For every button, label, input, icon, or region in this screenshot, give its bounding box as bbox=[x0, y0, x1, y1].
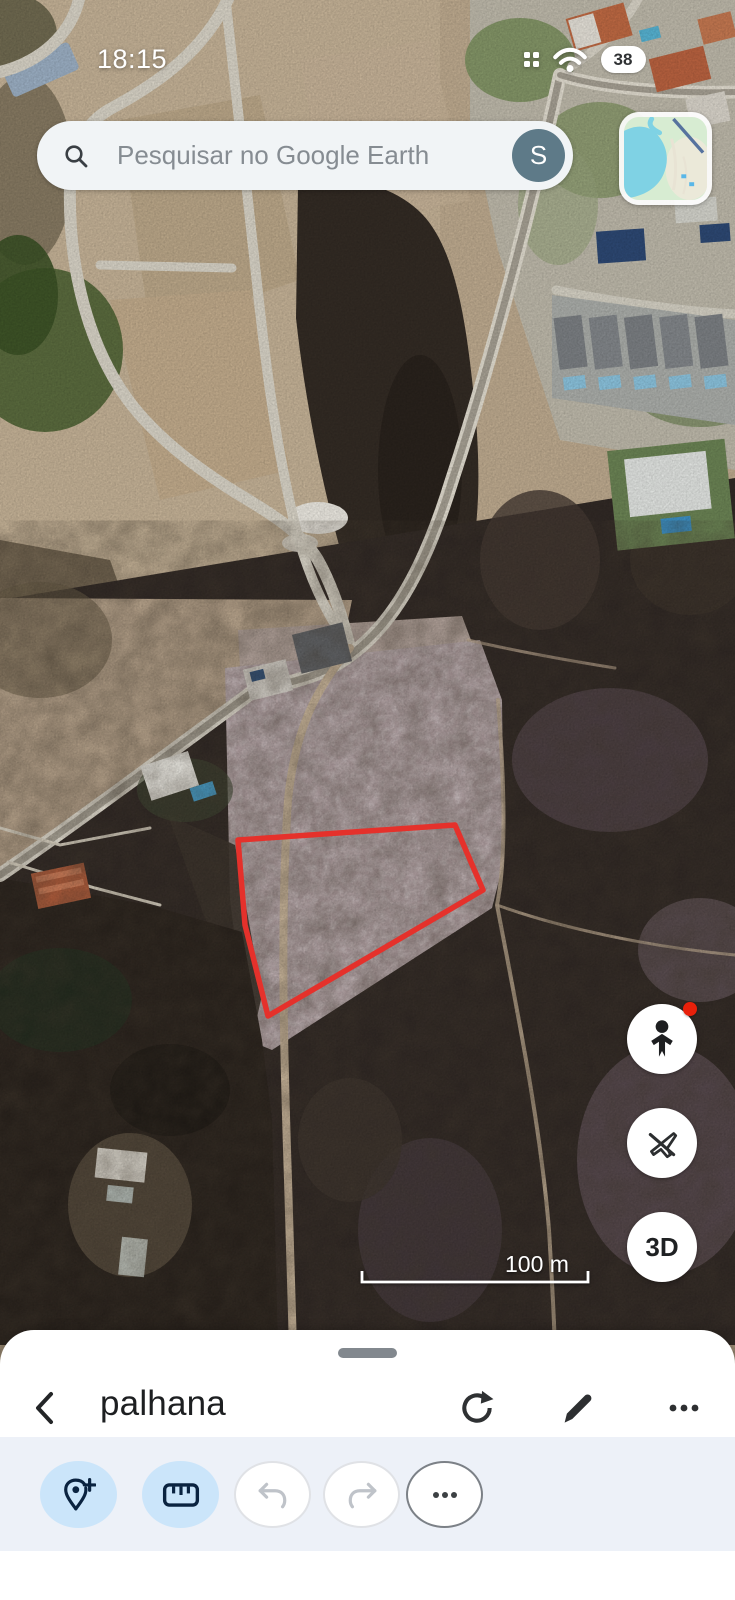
drag-handle[interactable] bbox=[338, 1348, 397, 1358]
flight-off-icon bbox=[643, 1124, 681, 1162]
bottom-sheet: palhana bbox=[0, 1330, 735, 1600]
mini-map bbox=[624, 117, 707, 200]
wifi-icon bbox=[553, 47, 587, 73]
back-chevron-icon bbox=[29, 1388, 59, 1428]
add-placemark-button[interactable] bbox=[40, 1461, 117, 1528]
ellipsis-icon bbox=[430, 1480, 460, 1510]
avatar-initial: S bbox=[530, 140, 547, 171]
measure-button[interactable] bbox=[142, 1461, 219, 1528]
grid-icon bbox=[524, 52, 539, 67]
google-earth-app: 18:15 38 S bbox=[0, 0, 735, 1600]
3d-toggle-button[interactable]: 3D bbox=[627, 1212, 697, 1282]
overflow-menu-icon bbox=[666, 1390, 702, 1426]
redo-icon bbox=[346, 1481, 378, 1509]
editing-toolbar bbox=[0, 1437, 735, 1551]
status-icons: 38 bbox=[524, 46, 646, 73]
account-avatar[interactable]: S bbox=[512, 129, 565, 182]
pencil-icon bbox=[559, 1390, 595, 1426]
notification-dot bbox=[683, 1002, 697, 1016]
pin-plus-icon bbox=[62, 1478, 96, 1512]
battery-icon: 38 bbox=[601, 46, 646, 73]
ruler-icon bbox=[162, 1480, 200, 1510]
flight-mode-button[interactable] bbox=[627, 1108, 697, 1178]
search-input[interactable] bbox=[115, 139, 512, 172]
scale-bar bbox=[356, 1266, 596, 1288]
satellite-grain bbox=[0, 0, 735, 1345]
back-button[interactable] bbox=[22, 1386, 66, 1430]
sheet-header: palhana bbox=[0, 1376, 735, 1440]
redo-button[interactable] bbox=[323, 1461, 400, 1528]
battery-percent: 38 bbox=[614, 50, 633, 70]
refresh-icon bbox=[458, 1389, 496, 1427]
map-layers-thumbnail[interactable] bbox=[619, 112, 712, 205]
more-tools-button[interactable] bbox=[406, 1461, 483, 1528]
refresh-button[interactable] bbox=[455, 1386, 499, 1430]
status-time: 18:15 bbox=[97, 44, 167, 75]
undo-button[interactable] bbox=[234, 1461, 311, 1528]
search-icon bbox=[63, 143, 89, 169]
overflow-menu-button[interactable] bbox=[662, 1386, 706, 1430]
pegman-icon bbox=[646, 1020, 678, 1058]
edit-button[interactable] bbox=[555, 1386, 599, 1430]
project-title: palhana bbox=[100, 1384, 226, 1424]
3d-label: 3D bbox=[645, 1232, 678, 1263]
search-bar[interactable]: S bbox=[37, 121, 573, 190]
undo-icon bbox=[257, 1481, 289, 1509]
